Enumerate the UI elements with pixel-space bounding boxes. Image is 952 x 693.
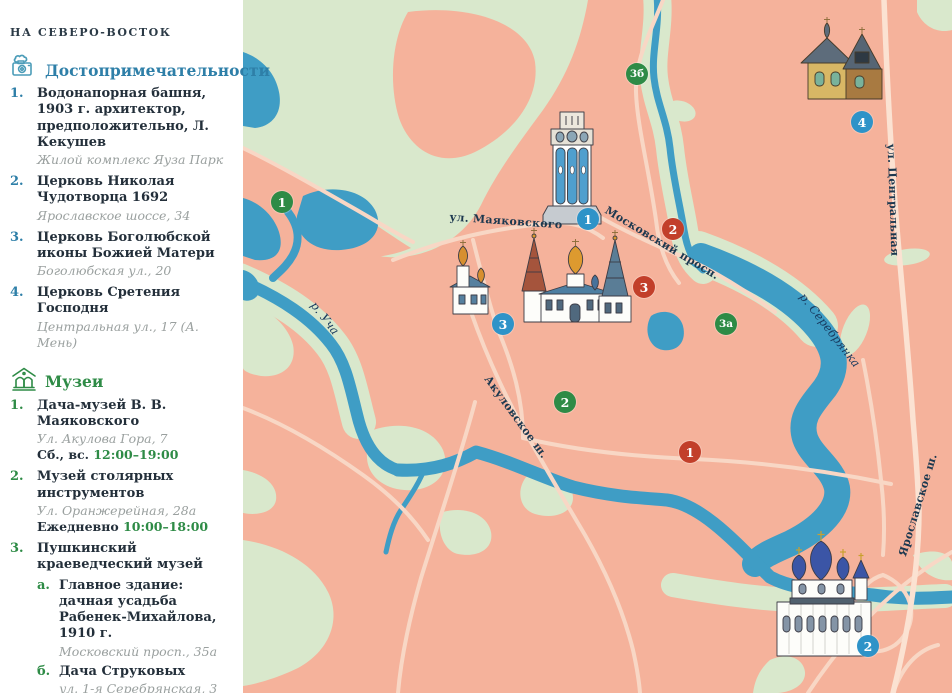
item-title: Церковь Боголюбской иконы Божией Матери <box>37 230 229 263</box>
item-body: Музей столярных инструментовУл. Оранжере… <box>37 469 229 535</box>
list-item: 2.Церковь Николая Чудотворца 1692Ярослав… <box>10 174 229 224</box>
marker-museum-1: 1 <box>271 191 293 213</box>
hours-time: 10:00–18:00 <box>123 519 208 534</box>
marker-attraction-1-water-tower: 1 <box>577 208 599 230</box>
item-number: а. <box>37 578 59 660</box>
marker-attraction-3-church: 3 <box>492 313 514 335</box>
item-number: б. <box>37 664 59 693</box>
item-number: 1. <box>10 398 37 464</box>
marker-food-2: 2 <box>662 218 684 240</box>
item-number: 3. <box>10 230 37 280</box>
item-title: Музей столярных инструментов <box>37 469 229 502</box>
marker-attraction-2-church: 2 <box>857 635 879 657</box>
hours-days: Ежедневно <box>37 519 123 534</box>
item-title: Водонапорная башня, 1903 г. архитектор, … <box>37 86 229 151</box>
section-museums: Музеи1.Дача-музей В. В. МаяковскогоУл. А… <box>10 366 229 693</box>
item-address: Центральная ул., 17 (А. Мень) <box>37 319 229 351</box>
map-canvas: ул. МаяковскогоМосковский просп.Акуловск… <box>243 0 952 693</box>
section-head-attractions: Достопримечательности <box>10 54 229 80</box>
item-title: Главное здание: дачная усадьба Рабенек-М… <box>59 578 229 643</box>
marker-attraction-4-church: 4 <box>851 111 873 133</box>
item-hours: Сб., вс. 12:00–19:00 <box>37 447 229 463</box>
section-head-museums: Музеи <box>10 366 229 392</box>
item-address: Ул. Акулова Гора, 7 <box>37 431 229 447</box>
item-body: Церковь Боголюбской иконы Божией МатериБ… <box>37 230 229 280</box>
item-address: Жилой комплекс Яуза Парк <box>37 152 229 168</box>
item-hours: Ежедневно 10:00–18:00 <box>37 519 229 535</box>
museum-icon <box>10 366 38 392</box>
marker-museum-3a: 3а <box>715 313 737 335</box>
list-item: а.Главное здание: дачная усадьба Рабенек… <box>37 578 229 660</box>
item-title: Пушкинский краеведческий музей <box>37 541 229 574</box>
section-attractions: Достопримечательности1.Водонапорная башн… <box>10 54 229 351</box>
hours-days: Сб., вс. <box>37 447 93 462</box>
item-title: Церковь Сретения Господня <box>37 285 229 318</box>
item-title: Дача-музей В. В. Маяковского <box>37 398 229 431</box>
list-item: 4.Церковь Сретения ГосподняЦентральная у… <box>10 285 229 351</box>
item-address: Ул. Оранжерейная, 28а <box>37 503 229 519</box>
item-body: Главное здание: дачная усадьба Рабенек-М… <box>59 578 229 660</box>
list-item: 2.Музей столярных инструментовУл. Оранже… <box>10 469 229 535</box>
item-number: 2. <box>10 469 37 535</box>
item-number: 2. <box>10 174 37 224</box>
list-item: б.Дача Струковыхул. 1-я Серебрянская, 3В… <box>37 664 229 693</box>
item-number: 3. <box>10 541 37 693</box>
page-title: НА СЕВЕРО-ВОСТОК <box>10 26 229 39</box>
item-number: 4. <box>10 285 37 351</box>
guide-map-page: НА СЕВЕРО-ВОСТОК Достопримечательности1.… <box>0 0 952 693</box>
item-body: Дача-музей В. В. МаяковскогоУл. Акулова … <box>37 398 229 464</box>
item-body: Дача Струковыхул. 1-я Серебрянская, 3Вт.… <box>59 664 229 693</box>
section-title-attractions: Достопримечательности <box>45 63 270 81</box>
item-body: Водонапорная башня, 1903 г. архитектор, … <box>37 86 229 168</box>
list-item: 1.Водонапорная башня, 1903 г. архитектор… <box>10 86 229 168</box>
list-item: 1.Дача-музей В. В. МаяковскогоУл. Акулов… <box>10 398 229 464</box>
legend-sections: Достопримечательности1.Водонапорная башн… <box>10 54 229 693</box>
marker-museum-3b: 3б <box>626 63 648 85</box>
legend-sidebar: НА СЕВЕРО-ВОСТОК Достопримечательности1.… <box>0 0 243 693</box>
item-body: Церковь Николая Чудотворца 1692Ярославск… <box>37 174 229 224</box>
item-body: Церковь Сретения ГосподняЦентральная ул.… <box>37 285 229 351</box>
camera-icon <box>10 54 38 80</box>
item-title: Церковь Николая Чудотворца 1692 <box>37 174 229 207</box>
marker-food-1: 1 <box>679 441 701 463</box>
list-item: 3.Церковь Боголюбской иконы Божией Матер… <box>10 230 229 280</box>
item-title: Дача Струковых <box>59 664 229 680</box>
item-address: Ярославское шоссе, 34 <box>37 208 229 224</box>
item-address: Московский просп., 35а <box>59 644 229 660</box>
item-body: Пушкинский краеведческий музейа.Главное … <box>37 541 229 693</box>
list-item: 3.Пушкинский краеведческий музейа.Главно… <box>10 541 229 693</box>
hours-time: 12:00–19:00 <box>93 447 178 462</box>
item-number: 1. <box>10 86 37 168</box>
section-title-museums: Музеи <box>45 374 103 392</box>
sub-list: а.Главное здание: дачная усадьба Рабенек… <box>37 578 229 693</box>
marker-museum-2: 2 <box>554 391 576 413</box>
item-address: Боголюбская ул., 20 <box>37 263 229 279</box>
marker-food-3: 3 <box>633 276 655 298</box>
item-address: ул. 1-я Серебрянская, 3 <box>59 681 229 693</box>
